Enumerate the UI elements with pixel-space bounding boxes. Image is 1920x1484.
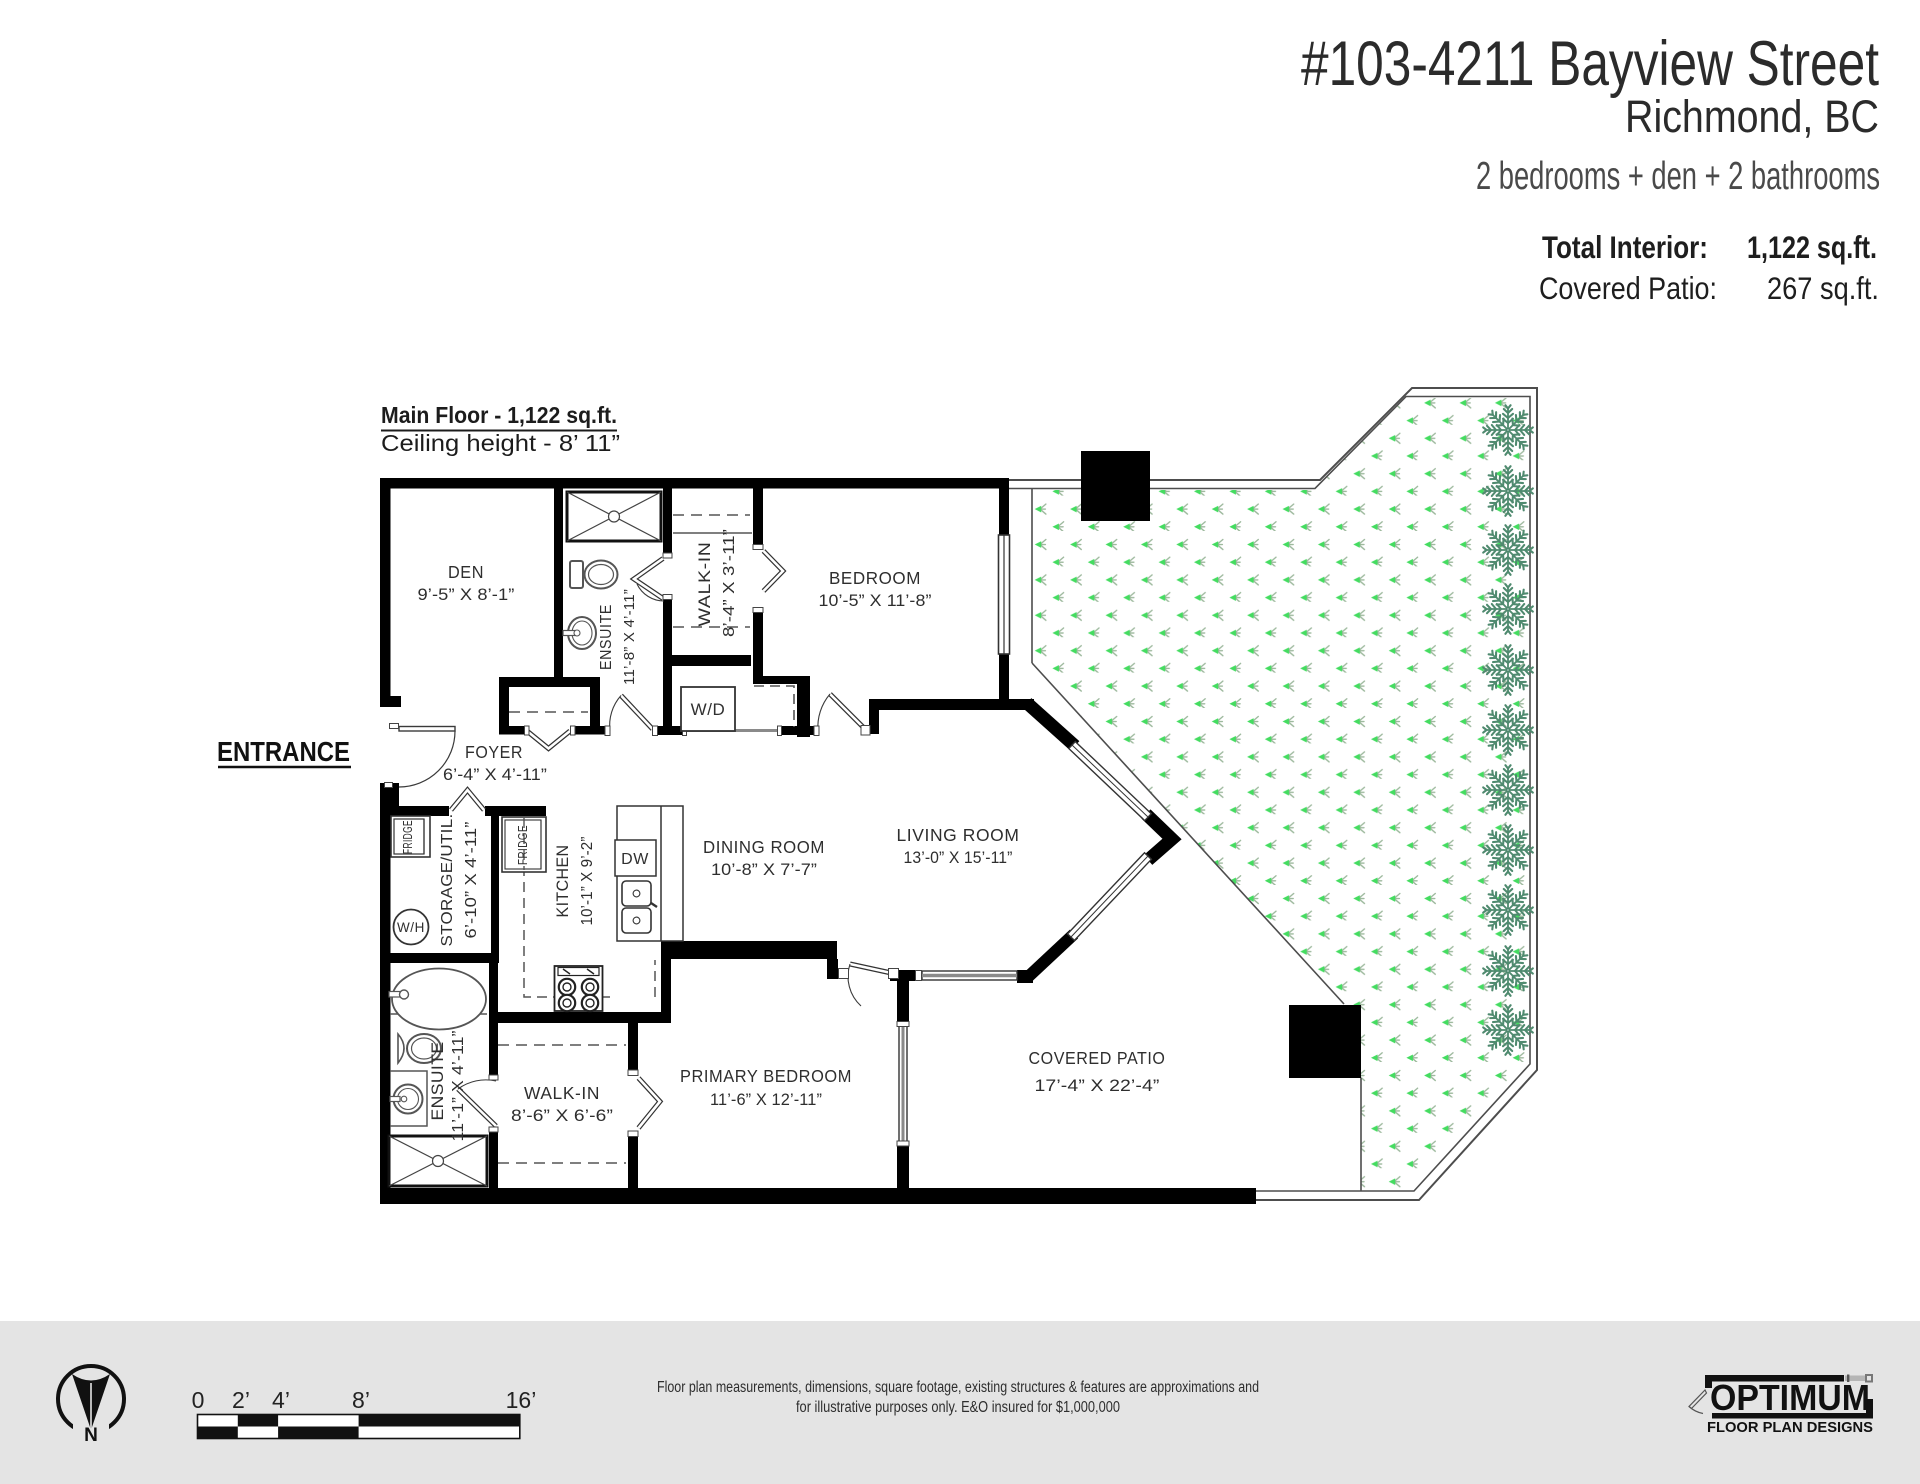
svg-text:8’: 8’: [352, 1387, 370, 1413]
svg-text:N: N: [84, 1425, 98, 1446]
svg-text:for illustrative purposes only: for illustrative purposes only. E&O insu…: [796, 1399, 1120, 1416]
svg-text:LIVING ROOM: LIVING ROOM: [897, 825, 1020, 845]
svg-text:17’-4” X 22’-4”: 17’-4” X 22’-4”: [1035, 1077, 1160, 1095]
svg-text:11’-8” X 4’-11”: 11’-8” X 4’-11”: [621, 589, 638, 685]
svg-text:Total Interior:: Total Interior:: [1542, 229, 1708, 265]
svg-text:6’-10” X 4’-11”: 6’-10” X 4’-11”: [463, 822, 480, 939]
svg-text:Ceiling height - 8’ 11”: Ceiling height - 8’ 11”: [381, 430, 620, 456]
svg-text:ENSUITE: ENSUITE: [429, 1042, 447, 1121]
svg-text:267 sq.ft.: 267 sq.ft.: [1767, 270, 1879, 306]
svg-text:11’-6” X 12’-11”: 11’-6” X 12’-11”: [710, 1091, 822, 1109]
svg-text:2’: 2’: [232, 1387, 250, 1413]
svg-text:FLOOR PLAN DESIGNS: FLOOR PLAN DESIGNS: [1707, 1419, 1873, 1436]
svg-text:OPTIMUM: OPTIMUM: [1710, 1377, 1870, 1418]
svg-text:FRIDGE: FRIDGE: [401, 820, 415, 854]
svg-text:0: 0: [192, 1387, 205, 1413]
svg-text:Covered Patio:: Covered Patio:: [1539, 270, 1717, 306]
svg-text:W/D: W/D: [691, 700, 726, 719]
svg-text:FOYER: FOYER: [465, 742, 523, 762]
svg-text:DEN: DEN: [448, 562, 484, 582]
svg-text:Floor plan measurements, dimen: Floor plan measurements, dimensions, squ…: [657, 1379, 1259, 1396]
svg-text:COVERED PATIO: COVERED PATIO: [1029, 1048, 1166, 1068]
svg-text:2 bedrooms + den + 2 bathrooms: 2 bedrooms + den + 2 bathrooms: [1476, 155, 1880, 198]
svg-text:STORAGE/UTIL.: STORAGE/UTIL.: [439, 814, 456, 947]
svg-text:4’: 4’: [272, 1387, 290, 1413]
svg-text:8’-4” X 3’-11”: 8’-4” X 3’-11”: [721, 529, 738, 637]
svg-text:Main Floor - 1,122 sq.ft.: Main Floor - 1,122 sq.ft.: [381, 402, 617, 428]
svg-text:11’-1” X 4’-11”: 11’-1” X 4’-11”: [450, 1031, 467, 1142]
svg-text:FRIDGE: FRIDGE: [516, 825, 530, 865]
svg-text:#103-4211 Bayview Street: #103-4211 Bayview Street: [1301, 29, 1879, 99]
svg-text:DW: DW: [621, 851, 649, 868]
svg-text:ENSUITE: ENSUITE: [598, 604, 615, 670]
svg-text:9’-5” X 8’-1”: 9’-5” X 8’-1”: [418, 586, 515, 604]
svg-text:DINING ROOM: DINING ROOM: [703, 837, 825, 857]
svg-text:PRIMARY BEDROOM: PRIMARY BEDROOM: [680, 1066, 852, 1086]
svg-text:KITCHEN: KITCHEN: [554, 845, 572, 918]
svg-text:8’-6” X 6’-6”: 8’-6” X 6’-6”: [511, 1107, 613, 1125]
svg-text:1,122 sq.ft.: 1,122 sq.ft.: [1747, 229, 1877, 265]
svg-text:13’-0” X 15’-11”: 13’-0” X 15’-11”: [904, 849, 1013, 867]
svg-text:10’-1” X 9’-2”: 10’-1” X 9’-2”: [579, 837, 596, 926]
svg-text:ENTRANCE: ENTRANCE: [217, 736, 350, 767]
svg-text:10’-5” X 11’-8”: 10’-5” X 11’-8”: [819, 592, 932, 610]
svg-text:WALK-IN: WALK-IN: [695, 542, 714, 627]
svg-text:BEDROOM: BEDROOM: [829, 568, 921, 588]
svg-text:W/H: W/H: [397, 920, 425, 935]
svg-text:6’-4” X 4’-11”: 6’-4” X 4’-11”: [443, 766, 547, 784]
svg-text:Richmond, BC: Richmond, BC: [1625, 91, 1879, 142]
svg-text:WALK-IN: WALK-IN: [524, 1083, 600, 1103]
svg-text:10’-8” X 7’-7”: 10’-8” X 7’-7”: [711, 861, 817, 879]
svg-text:16’: 16’: [506, 1387, 537, 1413]
